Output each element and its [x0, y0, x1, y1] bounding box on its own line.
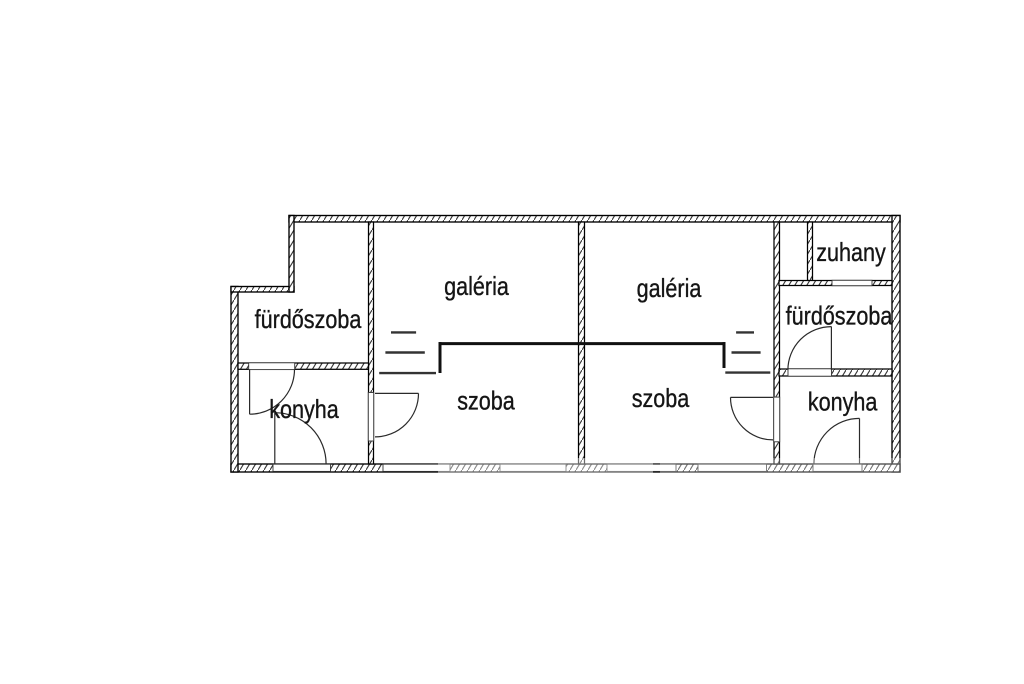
- svg-text:fürdőszoba: fürdőszoba: [786, 302, 893, 331]
- svg-text:szoba: szoba: [457, 387, 515, 416]
- svg-text:konyha: konyha: [269, 395, 339, 424]
- svg-text:konyha: konyha: [808, 388, 878, 417]
- svg-text:szoba: szoba: [632, 384, 690, 413]
- svg-text:galéria: galéria: [637, 274, 702, 303]
- svg-text:galéria: galéria: [444, 272, 509, 301]
- svg-text:zuhany: zuhany: [816, 238, 886, 267]
- svg-text:fürdőszoba: fürdőszoba: [255, 305, 362, 334]
